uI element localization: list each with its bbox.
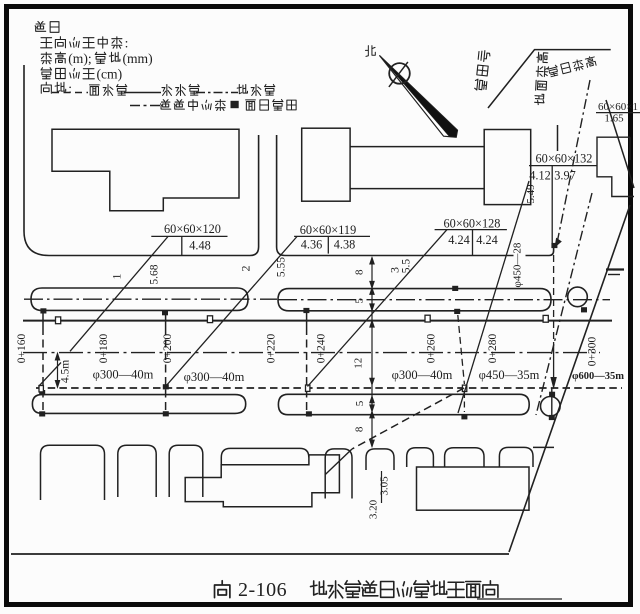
- svg-text:5.68: 5.68: [149, 264, 161, 284]
- svg-text:(cm): (cm): [96, 66, 122, 82]
- svg-text:φ450—28: φ450—28: [512, 242, 524, 287]
- svg-text:8: 8: [353, 426, 365, 432]
- svg-text:2-106: 2-106: [238, 579, 287, 601]
- svg-text:4.36: 4.36: [301, 238, 323, 252]
- svg-text:0+160: 0+160: [16, 334, 28, 364]
- svg-text:60×60×120: 60×60×120: [164, 222, 221, 236]
- svg-text:5: 5: [354, 400, 366, 406]
- svg-text:3.20: 3.20: [367, 499, 379, 519]
- svg-text:60×60×128: 60×60×128: [444, 216, 501, 230]
- svg-text:2: 2: [239, 266, 253, 272]
- svg-text:3: 3: [388, 267, 402, 273]
- svg-text:5: 5: [353, 298, 365, 304]
- svg-text:0+180: 0+180: [98, 334, 110, 364]
- svg-text:3.97: 3.97: [554, 169, 576, 183]
- svg-text:5.5: 5.5: [401, 259, 413, 274]
- svg-text:φ300—40m: φ300—40m: [392, 368, 453, 382]
- svg-text:3.05: 3.05: [378, 476, 390, 496]
- svg-text:12: 12: [353, 358, 365, 369]
- svg-text:0+280: 0+280: [487, 334, 499, 364]
- svg-text:0+240: 0+240: [316, 334, 328, 364]
- svg-text:φ600—35m: φ600—35m: [572, 371, 624, 382]
- svg-text:(mm): (mm): [122, 51, 152, 67]
- svg-text:4.5m: 4.5m: [60, 360, 72, 383]
- svg-text:4.24: 4.24: [448, 233, 470, 247]
- svg-text:0+200: 0+200: [162, 334, 174, 364]
- svg-text:0+260: 0+260: [426, 334, 438, 364]
- svg-text:φ300—40m: φ300—40m: [184, 370, 245, 384]
- svg-text:0+220: 0+220: [266, 334, 278, 364]
- svg-text:(m);: (m);: [68, 51, 91, 67]
- svg-text:1.65: 1.65: [604, 113, 624, 125]
- svg-text:φ450—35m: φ450—35m: [479, 368, 540, 382]
- svg-text:1: 1: [110, 274, 124, 280]
- svg-text:4.38: 4.38: [334, 238, 356, 252]
- svg-text:4.24: 4.24: [476, 233, 498, 247]
- svg-text:60×60×119: 60×60×119: [300, 223, 356, 237]
- svg-text::: :: [68, 81, 72, 96]
- svg-text:60×60×1: 60×60×1: [598, 101, 638, 113]
- svg-text:5.55: 5.55: [276, 257, 288, 277]
- svg-text:0+300: 0+300: [586, 337, 598, 367]
- svg-text:4.12: 4.12: [529, 169, 551, 183]
- svg-text:φ300—40m: φ300—40m: [93, 368, 154, 382]
- svg-text:8: 8: [353, 269, 365, 275]
- svg-text::: :: [125, 35, 129, 50]
- svg-text:4.48: 4.48: [189, 239, 211, 253]
- svg-text:60×60×132: 60×60×132: [536, 152, 593, 166]
